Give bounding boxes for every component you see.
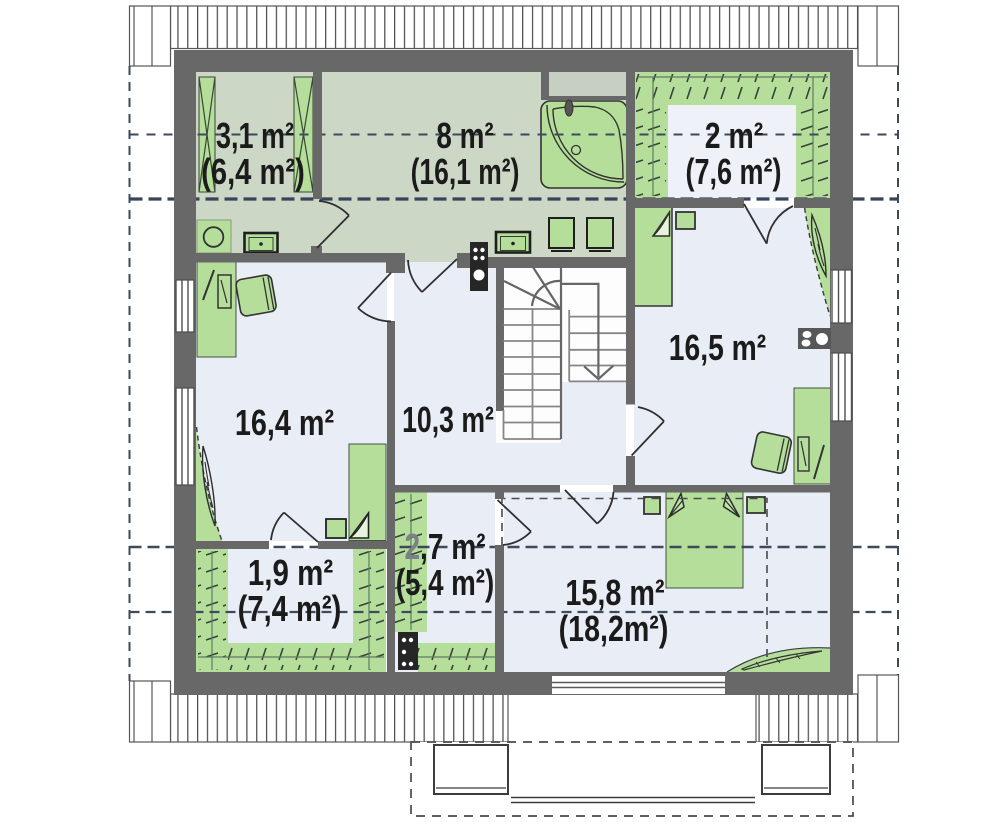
svg-text:(18,2m²): (18,2m²) [559, 609, 669, 649]
svg-text:10,3 m²: 10,3 m² [402, 399, 494, 440]
svg-text:2,7 m²: 2,7 m² [404, 527, 485, 567]
svg-text:16,5 m²: 16,5 m² [669, 328, 767, 368]
svg-text:8 m²: 8 m² [436, 116, 494, 156]
svg-text:(7,4 m²): (7,4 m²) [238, 588, 342, 629]
svg-text:(6,4 m²): (6,4 m²) [201, 151, 305, 192]
svg-text:16,4 m²: 16,4 m² [235, 402, 334, 443]
svg-text:3,1 m²: 3,1 m² [216, 115, 294, 156]
svg-text:(7,6 m²): (7,6 m²) [686, 151, 782, 192]
svg-text:(16,1 m²): (16,1 m²) [411, 151, 520, 192]
svg-text:(5,4 m²): (5,4 m²) [396, 563, 495, 603]
svg-text:2 m²: 2 m² [705, 116, 764, 156]
svg-text:15,8 m²: 15,8 m² [565, 572, 664, 613]
svg-text:1,9 m²: 1,9 m² [248, 552, 333, 592]
